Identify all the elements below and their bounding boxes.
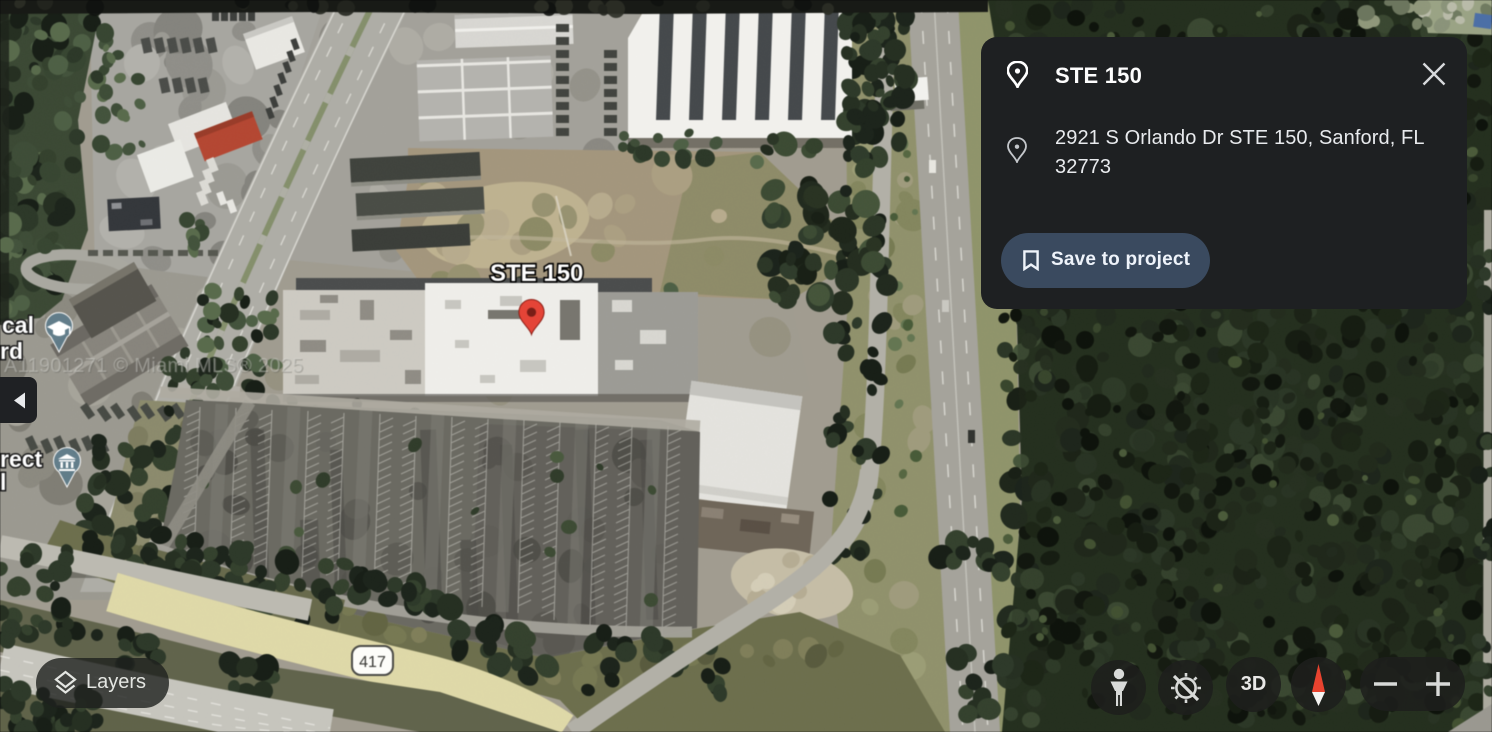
svg-text:STE 150: STE 150 bbox=[490, 260, 583, 287]
svg-text:rd: rd bbox=[0, 338, 23, 364]
svg-text:417: 417 bbox=[359, 654, 386, 671]
svg-text:cal: cal bbox=[2, 312, 34, 338]
svg-text:l: l bbox=[0, 469, 6, 495]
svg-text:A11901271 © Miami MLS® 2025: A11901271 © Miami MLS® 2025 bbox=[4, 355, 304, 377]
